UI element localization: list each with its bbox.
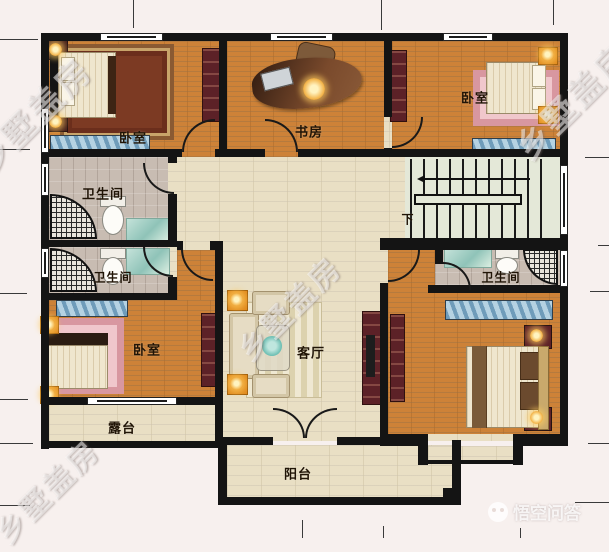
wall-study-bedroomtr — [384, 33, 392, 117]
dimension-tick — [598, 245, 609, 246]
wall-bathroom-east — [168, 194, 177, 247]
bedside-lamp — [530, 411, 543, 424]
wall-living-south — [223, 437, 273, 445]
bedside-lamp — [541, 48, 554, 61]
bedside-lamp — [530, 329, 543, 342]
dimension-tick — [0, 293, 27, 294]
wall-post — [428, 285, 443, 293]
dimension-tick — [588, 443, 609, 444]
wall-bedroomtl-study — [219, 33, 227, 157]
table-lamp — [230, 293, 243, 306]
label-bedroom-bottom-left: 卧室 — [133, 340, 161, 359]
armchair — [252, 291, 290, 315]
window-seat — [445, 300, 553, 320]
dimension-tick — [520, 528, 521, 538]
stair-handrail — [414, 194, 522, 205]
bed — [44, 345, 108, 389]
dimension-tick — [553, 0, 554, 25]
bed-foot-bench — [108, 56, 116, 114]
site-logo-icon — [488, 502, 508, 522]
window — [41, 108, 49, 153]
dimension-tick — [585, 157, 609, 158]
dresser — [390, 314, 405, 402]
dimension-tick — [0, 505, 30, 506]
sofa — [229, 313, 259, 379]
wardrobe — [202, 48, 220, 122]
wall-stairs-south — [380, 238, 560, 250]
bed-quilt-band — [472, 346, 487, 428]
label-bedroom-top-right: 卧室 — [461, 88, 489, 107]
wall-exterior-left — [41, 33, 49, 449]
label-terrace: 露台 — [108, 418, 136, 437]
pillow — [520, 352, 540, 380]
wall-interior — [49, 149, 182, 157]
table-lamp — [230, 377, 243, 390]
floor-plan-page: { "rooms": { "bedroom_top_left": { "labe… — [0, 0, 609, 538]
bay-window-rail — [418, 460, 523, 464]
label-bathroom-upper-left: 卫生间 — [82, 184, 124, 203]
tv — [366, 335, 375, 377]
label-balcony: 阳台 — [284, 464, 312, 483]
pillow — [520, 382, 540, 410]
pillow — [61, 82, 75, 106]
dimension-tick — [0, 149, 30, 150]
armchair — [252, 374, 290, 398]
label-bathroom-right: 卫生间 — [481, 269, 520, 286]
window-seat — [56, 300, 128, 317]
dimension-tick — [0, 399, 28, 400]
toilet — [102, 205, 124, 235]
pillow — [532, 65, 546, 87]
label-stairs-down: 下 — [401, 211, 414, 228]
balcony-wall-bottom — [218, 497, 461, 505]
label-living-room: 客厅 — [297, 343, 325, 362]
wall-interior — [215, 149, 265, 157]
label-bedroom-top-left: 卧室 — [119, 128, 147, 147]
dimension-tick — [590, 291, 609, 292]
vanity-sink — [126, 218, 170, 242]
label-study: 书房 — [295, 122, 323, 141]
bedside-lamp — [49, 115, 62, 128]
terrace-railing — [41, 441, 223, 448]
wall-bedroombl-south — [177, 397, 219, 405]
bed-headboard — [50, 52, 58, 118]
balcony-corner-post — [443, 488, 461, 505]
wall-bathroom-bedroom — [49, 293, 177, 300]
window — [560, 165, 568, 235]
stair-direction-line — [424, 178, 530, 180]
window — [443, 33, 493, 41]
bed-headboard — [44, 333, 108, 345]
table-plant — [262, 336, 282, 356]
window — [100, 33, 163, 41]
balcony-wall-left — [218, 437, 227, 505]
window — [560, 250, 568, 287]
wall-living-east — [380, 283, 388, 437]
window — [41, 248, 49, 278]
pillow — [61, 57, 75, 81]
dimension-tick — [133, 0, 134, 28]
site-watermark-text: 悟空问答 — [513, 499, 581, 524]
wall-bathroomr-west — [435, 248, 443, 264]
bay-window-floor — [428, 446, 513, 460]
dimension-tick — [0, 39, 38, 40]
wall-exterior-right — [560, 33, 568, 446]
dimension-tick — [0, 443, 33, 444]
dimension-tick — [381, 0, 382, 30]
window — [87, 397, 177, 405]
label-bathroom-lower-left: 卫生间 — [93, 269, 132, 286]
wall-bedroombl-south — [49, 397, 87, 405]
dimension-tick — [383, 526, 384, 538]
desk-lamp — [303, 78, 325, 100]
stair-direction-arrow — [417, 175, 425, 183]
wall-bathroom-divider — [49, 240, 168, 247]
site-watermark: 悟空问答 — [488, 499, 581, 524]
dimension-tick — [302, 520, 303, 538]
window — [270, 33, 333, 41]
window — [41, 163, 49, 196]
bedside-lamp — [541, 108, 554, 121]
wall-interior — [298, 149, 560, 157]
bookshelf — [390, 50, 407, 122]
bedside-lamp — [49, 43, 62, 56]
